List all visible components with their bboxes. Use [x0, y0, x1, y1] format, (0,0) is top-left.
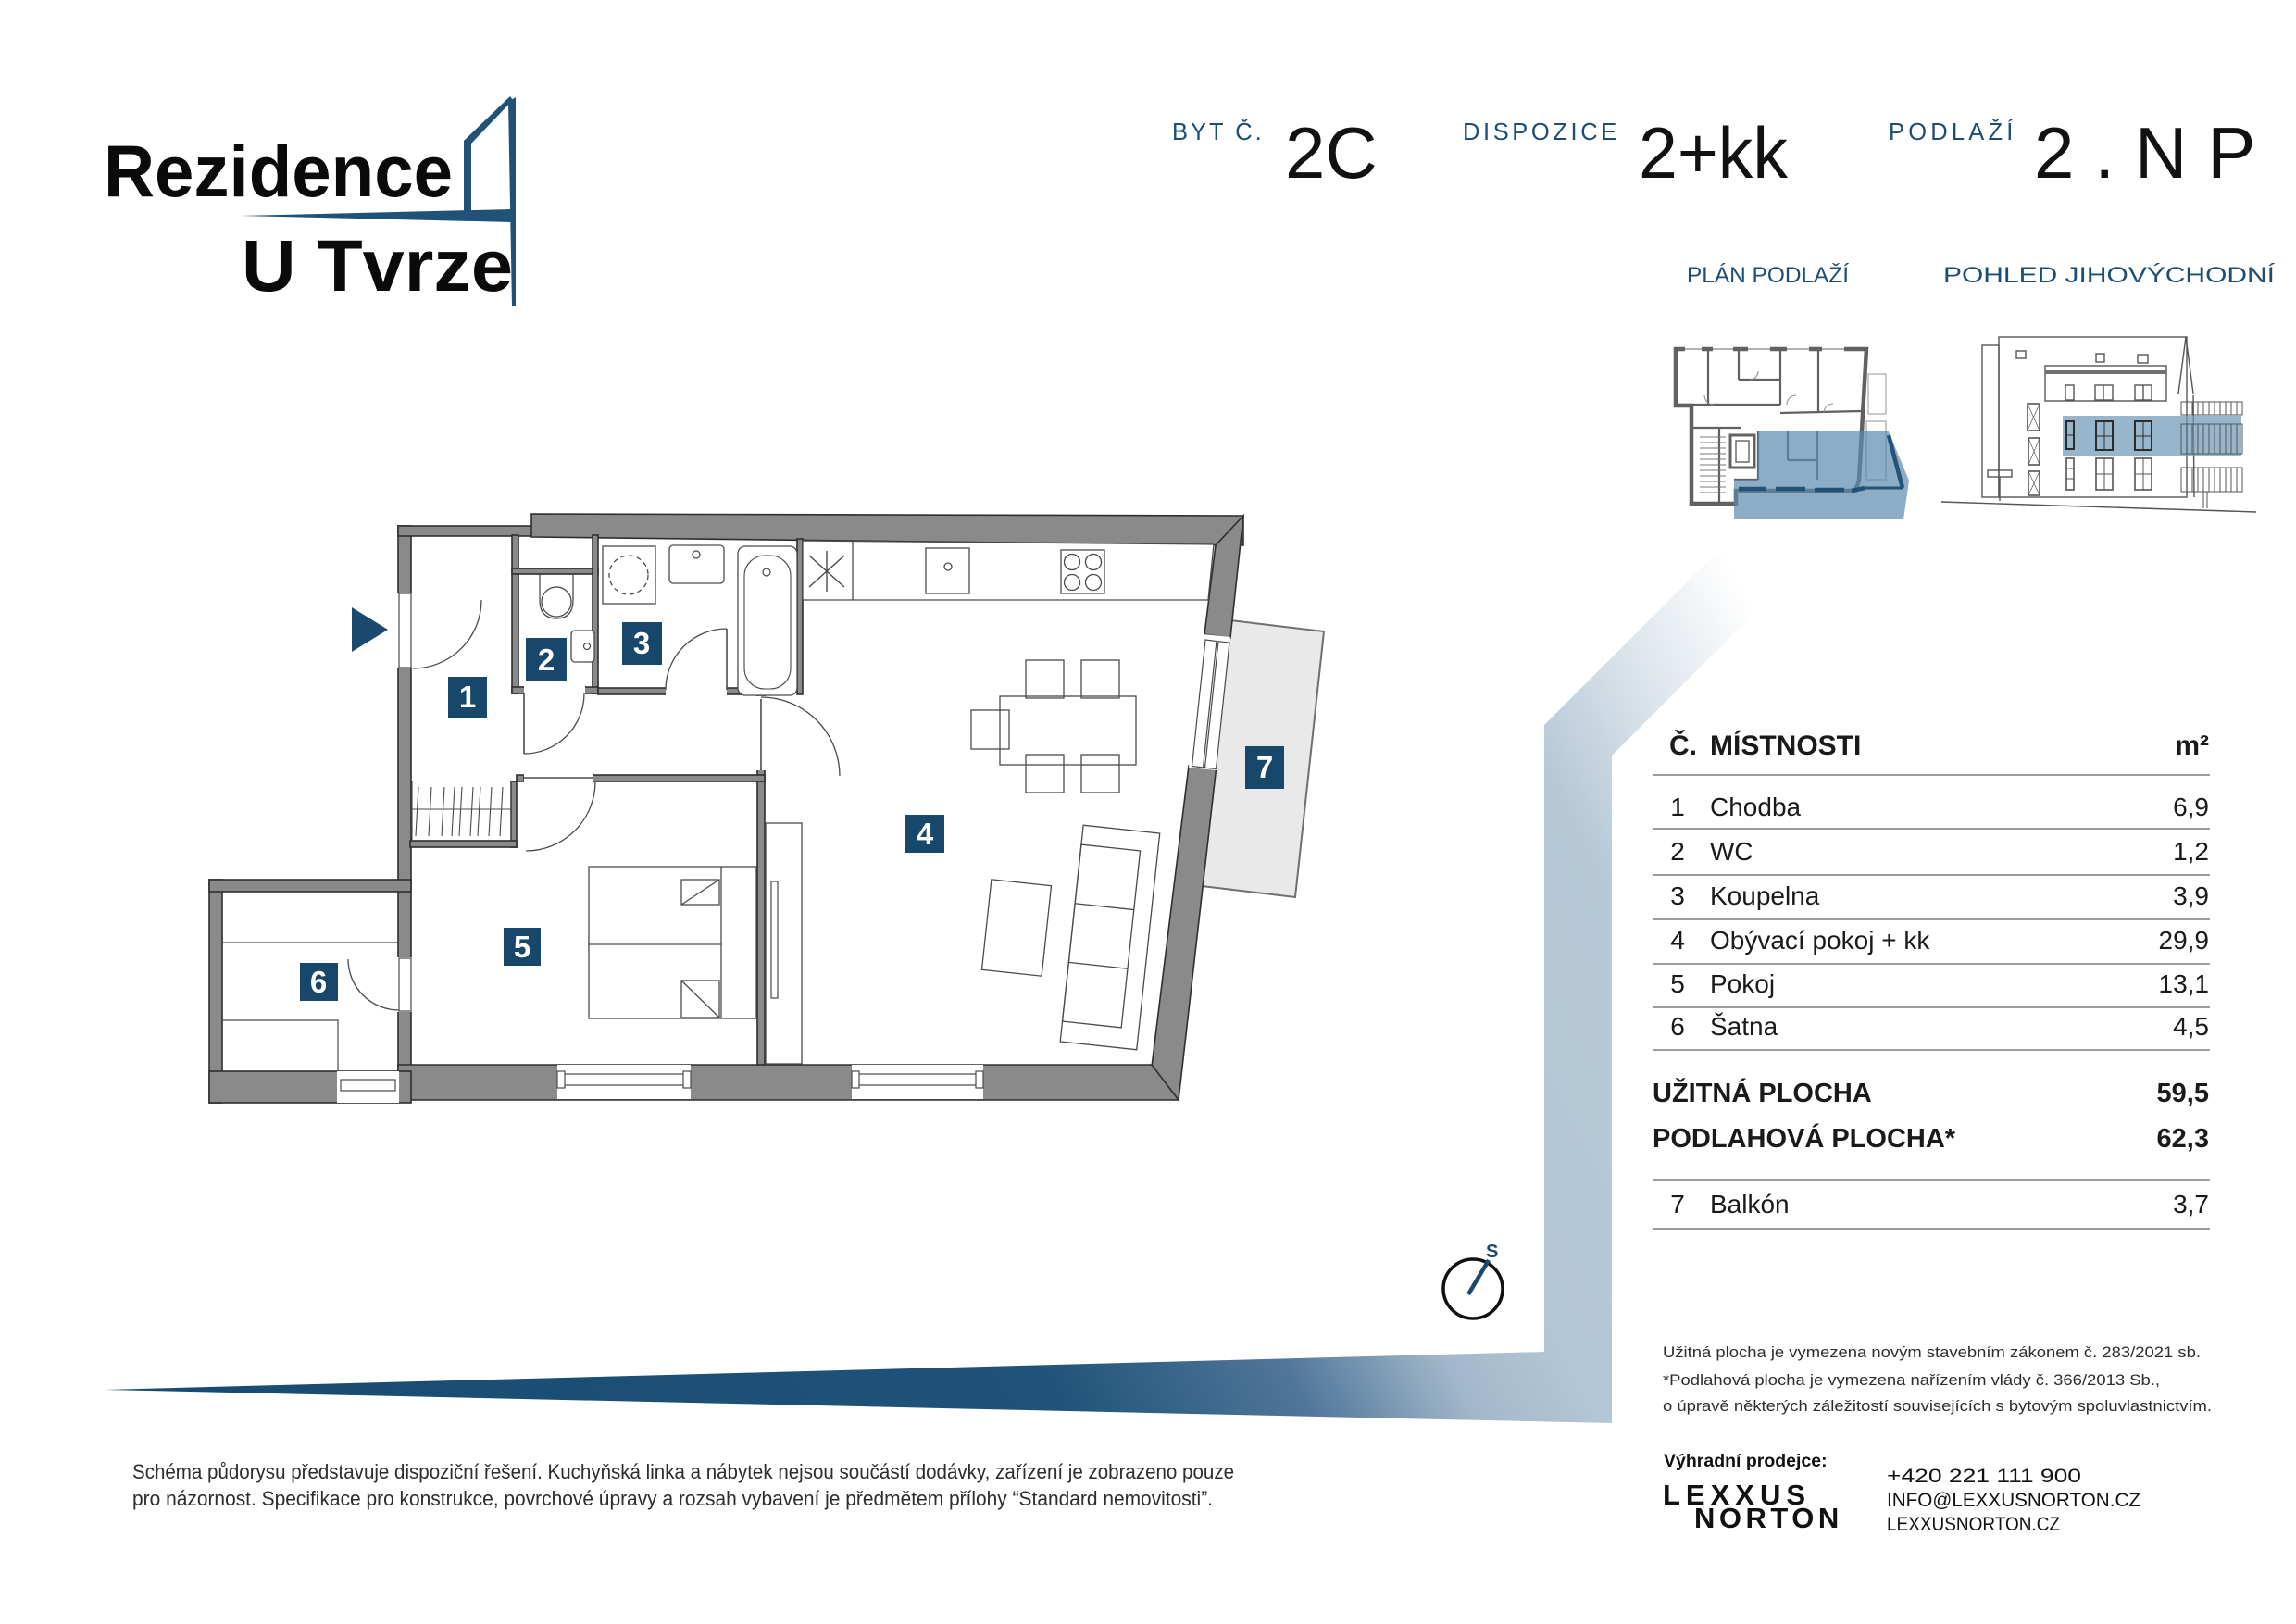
svg-text:o úpravě některých záležitostí: o úpravě některých záležitostí souvisejí…: [1663, 1398, 2212, 1415]
svg-text:Chodba: Chodba: [1710, 793, 1802, 821]
svg-text:3,7: 3,7: [2173, 1190, 2209, 1218]
svg-text:5: 5: [1670, 969, 1685, 998]
svg-text:1: 1: [1670, 793, 1685, 821]
svg-text:62,3: 62,3: [2157, 1124, 2209, 1154]
svg-text:4: 4: [917, 817, 934, 851]
svg-text:pro názornost. Specifikace pro: pro názornost. Specifikace pro konstrukc…: [132, 1487, 1213, 1510]
svg-text:3: 3: [633, 626, 650, 660]
svg-text:Balkón: Balkón: [1710, 1190, 1790, 1218]
svg-text:Pokoj: Pokoj: [1710, 969, 1775, 998]
svg-text:S: S: [1486, 1242, 1498, 1262]
svg-text:PODLAŽÍ: PODLAŽÍ: [1889, 119, 2017, 145]
svg-text:NORTON: NORTON: [1694, 1502, 1843, 1534]
svg-text:2+kk: 2+kk: [1639, 112, 1789, 194]
svg-text:POHLED JIHOVÝCHODNÍ: POHLED JIHOVÝCHODNÍ: [1943, 263, 2275, 288]
svg-text:7: 7: [1256, 750, 1273, 784]
svg-text:Koupelna: Koupelna: [1710, 881, 1820, 910]
svg-text:13,1: 13,1: [2159, 969, 2210, 998]
svg-text:PODLAHOVÁ PLOCHA*: PODLAHOVÁ PLOCHA*: [1653, 1122, 1956, 1154]
svg-text:UŽITNÁ PLOCHA: UŽITNÁ PLOCHA: [1653, 1077, 1872, 1108]
svg-text:PLÁN PODLAŽÍ: PLÁN PODLAŽÍ: [1687, 263, 1849, 288]
svg-text:1,2: 1,2: [2173, 837, 2209, 866]
svg-text:4,5: 4,5: [2173, 1012, 2209, 1041]
svg-text:MÍSTNOSTI: MÍSTNOSTI: [1710, 730, 1861, 761]
svg-text:2.NP: 2.NP: [2034, 112, 2276, 194]
svg-text:m²: m²: [2175, 731, 2209, 761]
svg-text:2: 2: [538, 643, 555, 677]
svg-text:*Podlahová plocha je vymezena: *Podlahová plocha je vymezena nařízením …: [1663, 1372, 2160, 1389]
svg-text:3,9: 3,9: [2173, 881, 2209, 910]
svg-text:Obývací pokoj + kk: Obývací pokoj + kk: [1710, 926, 1930, 955]
svg-text:5: 5: [514, 930, 530, 964]
svg-text:DISPOZICE: DISPOZICE: [1463, 119, 1620, 145]
svg-text:INFO@LEXXUSNORTON.CZ: INFO@LEXXUSNORTON.CZ: [1887, 1490, 2140, 1511]
svg-text:+420 221 111 900: +420 221 111 900: [1887, 1466, 2081, 1487]
svg-text:1: 1: [459, 680, 476, 714]
svg-text:U Tvrze: U Tvrze: [242, 224, 513, 306]
svg-text:2: 2: [1670, 837, 1685, 866]
svg-text:LEXXUSNORTON.CZ: LEXXUSNORTON.CZ: [1887, 1514, 2060, 1535]
svg-text:2C: 2C: [1285, 112, 1378, 194]
svg-text:6: 6: [310, 965, 327, 999]
svg-text:BYT Č.: BYT Č.: [1172, 119, 1265, 145]
svg-text:Rezidence: Rezidence: [104, 130, 453, 212]
svg-text:Šatna: Šatna: [1710, 1012, 1778, 1041]
svg-text:WC: WC: [1710, 837, 1753, 866]
svg-text:29,9: 29,9: [2159, 926, 2210, 955]
svg-text:4: 4: [1670, 926, 1685, 955]
svg-text:Č.: Č.: [1669, 730, 1697, 761]
svg-text:6: 6: [1670, 1012, 1685, 1041]
svg-text:Výhradní prodejce:: Výhradní prodejce:: [1664, 1451, 1828, 1471]
svg-text:3: 3: [1670, 881, 1685, 910]
svg-text:6,9: 6,9: [2173, 793, 2209, 821]
svg-text:7: 7: [1670, 1190, 1685, 1218]
svg-text:Schéma půdorysu představuje di: Schéma půdorysu představuje dispoziční ř…: [132, 1460, 1234, 1483]
svg-text:59,5: 59,5: [2157, 1079, 2209, 1108]
svg-text:Užitná plocha je vymezena nový: Užitná plocha je vymezena novým stavební…: [1663, 1344, 2201, 1361]
